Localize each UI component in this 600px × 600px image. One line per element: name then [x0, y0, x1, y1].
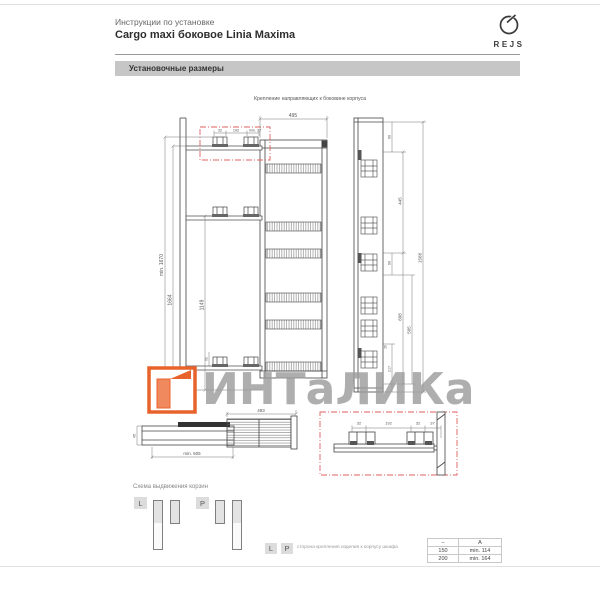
dim-side-foot: 26 — [384, 345, 388, 349]
schema-p-fixed-basket — [215, 500, 225, 524]
dim-detail-4: 37 — [430, 421, 435, 426]
dim-front-height-min: min. 1670 — [159, 254, 165, 276]
instruction-page: Инструкции по установке Cargo maxi боков… — [0, 0, 600, 600]
dim-front-pitch-mid: 192 — [233, 129, 239, 133]
dim-side-span-inner: 505 — [407, 326, 412, 334]
side-view — [354, 118, 383, 392]
front-baskets — [266, 164, 321, 371]
dim-detail-2: 192 — [385, 421, 392, 426]
dim-front-height-mid: 1149 — [200, 299, 206, 310]
front-view — [180, 118, 327, 392]
dim-detail-3: 32 — [416, 421, 421, 426]
schema-heading: Схема выдвижения корзин — [133, 484, 208, 490]
plan-view — [142, 416, 297, 449]
dim-plan-depth: min. 505 — [183, 451, 201, 456]
table-row: 200 min. 164 — [428, 555, 502, 563]
front-rails — [186, 137, 262, 370]
legend-badge-l: L — [265, 543, 277, 554]
table-header-row: – A — [428, 539, 502, 547]
dim-detail-1: 32 — [357, 421, 362, 426]
detail-bracket-2 — [407, 432, 433, 445]
schema-badge-right: P — [196, 497, 209, 509]
dim-front-pitch-left: 32 — [218, 129, 222, 133]
dim-side-span-upper: 445 — [398, 197, 403, 205]
technical-drawing: Крепление направляющих к боковине корпус… — [0, 0, 600, 600]
drawing-caption: Крепление направляющих к боковине корпус… — [254, 96, 366, 102]
table-cell: 150 — [428, 547, 459, 555]
side-baskets — [361, 160, 377, 368]
dim-side-total-height: 1568 — [418, 252, 423, 263]
dim-plan-rail-height: 45 — [133, 434, 137, 438]
dim-side-mid-offset: 90 — [388, 261, 392, 265]
schema-p-extended-basket — [232, 500, 242, 550]
dim-side-top-offset: 90 — [388, 135, 392, 139]
dim-front-width: 495 — [289, 113, 298, 119]
dim-front-bottom-offset: 92 — [205, 357, 209, 361]
detail-bracket-1 — [349, 432, 375, 445]
table-cell: min. 114 — [459, 547, 502, 555]
legend-badge-p: P — [281, 543, 293, 554]
table-header-a: A — [459, 539, 502, 547]
table-cell: 200 — [428, 555, 459, 563]
schema-l-extended-basket — [153, 500, 163, 550]
table-row: 150 min. 114 — [428, 547, 502, 555]
schema-l-fixed-basket — [170, 500, 180, 524]
dim-front-pitch-right: min. 37 — [249, 129, 261, 133]
dim-side-span-lower: 608 — [398, 313, 403, 321]
dimension-table: – A 150 min. 114 200 min. 164 — [427, 538, 502, 563]
table-header-width: – — [428, 539, 459, 547]
schema-badge-left: L — [134, 497, 147, 509]
intalika-logo-icon — [147, 366, 197, 414]
dim-front-height-rail: 1664 — [168, 294, 174, 305]
legend-caption: сторона крепления изделия к корпусу шкаф… — [297, 545, 427, 550]
table-cell: min. 164 — [459, 555, 502, 563]
intalika-watermark-text: ИНТаЛИКа — [202, 366, 472, 416]
